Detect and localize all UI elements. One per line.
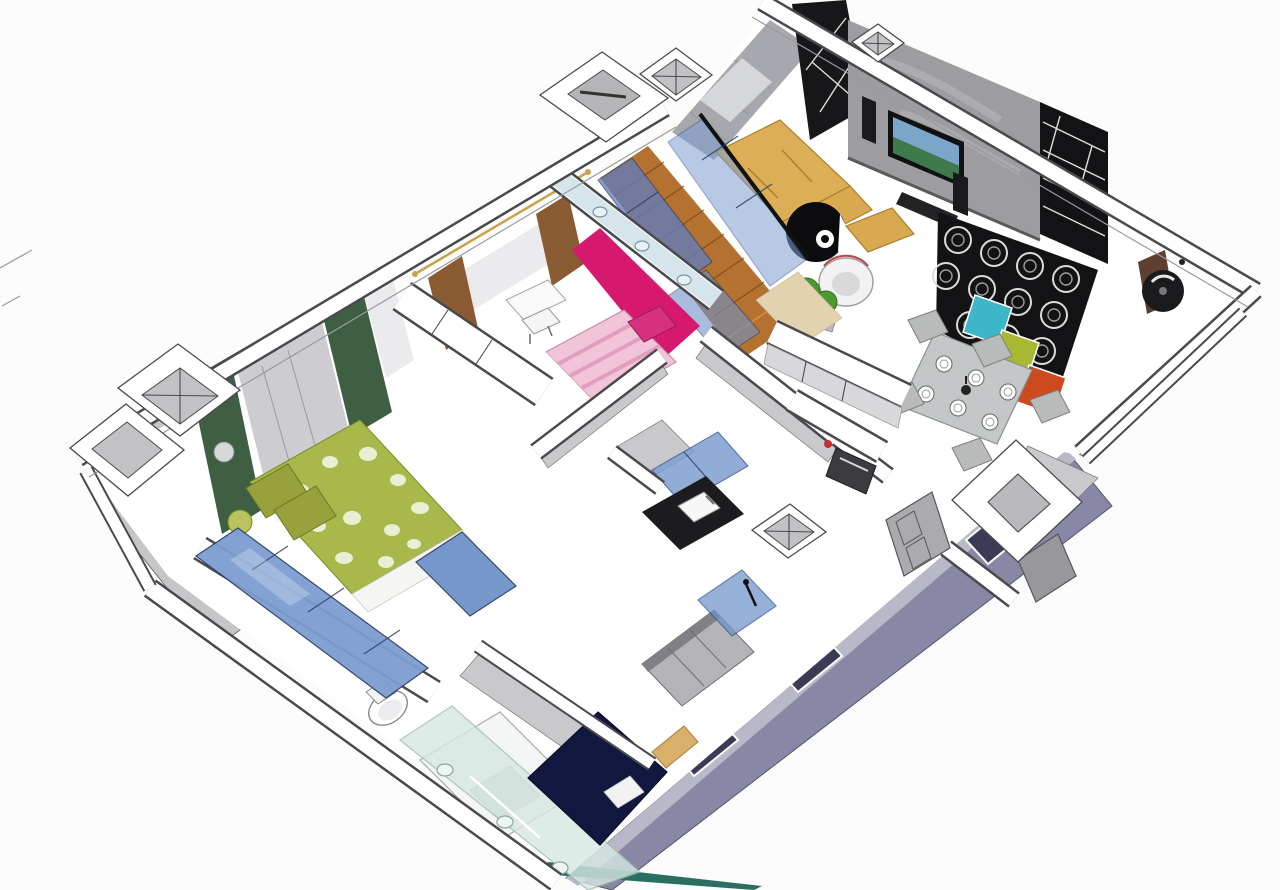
kettle [824,440,832,448]
glass-knob [497,816,513,828]
glass-knob [677,275,691,285]
speaker [953,172,968,216]
shower-head [743,579,749,585]
rod-finial [412,271,418,277]
bedside-lamp [214,442,234,462]
egg-chair-cushion [821,235,829,243]
rod-finial [585,169,591,175]
candle-centerpiece [961,385,971,395]
speaker [862,96,876,144]
armchair-seat [832,272,860,296]
glass-knob [593,207,607,217]
fan-hub [1159,287,1167,295]
glass-knob [437,764,453,776]
floorplan-render [0,0,1280,890]
glass-knob [635,241,649,251]
